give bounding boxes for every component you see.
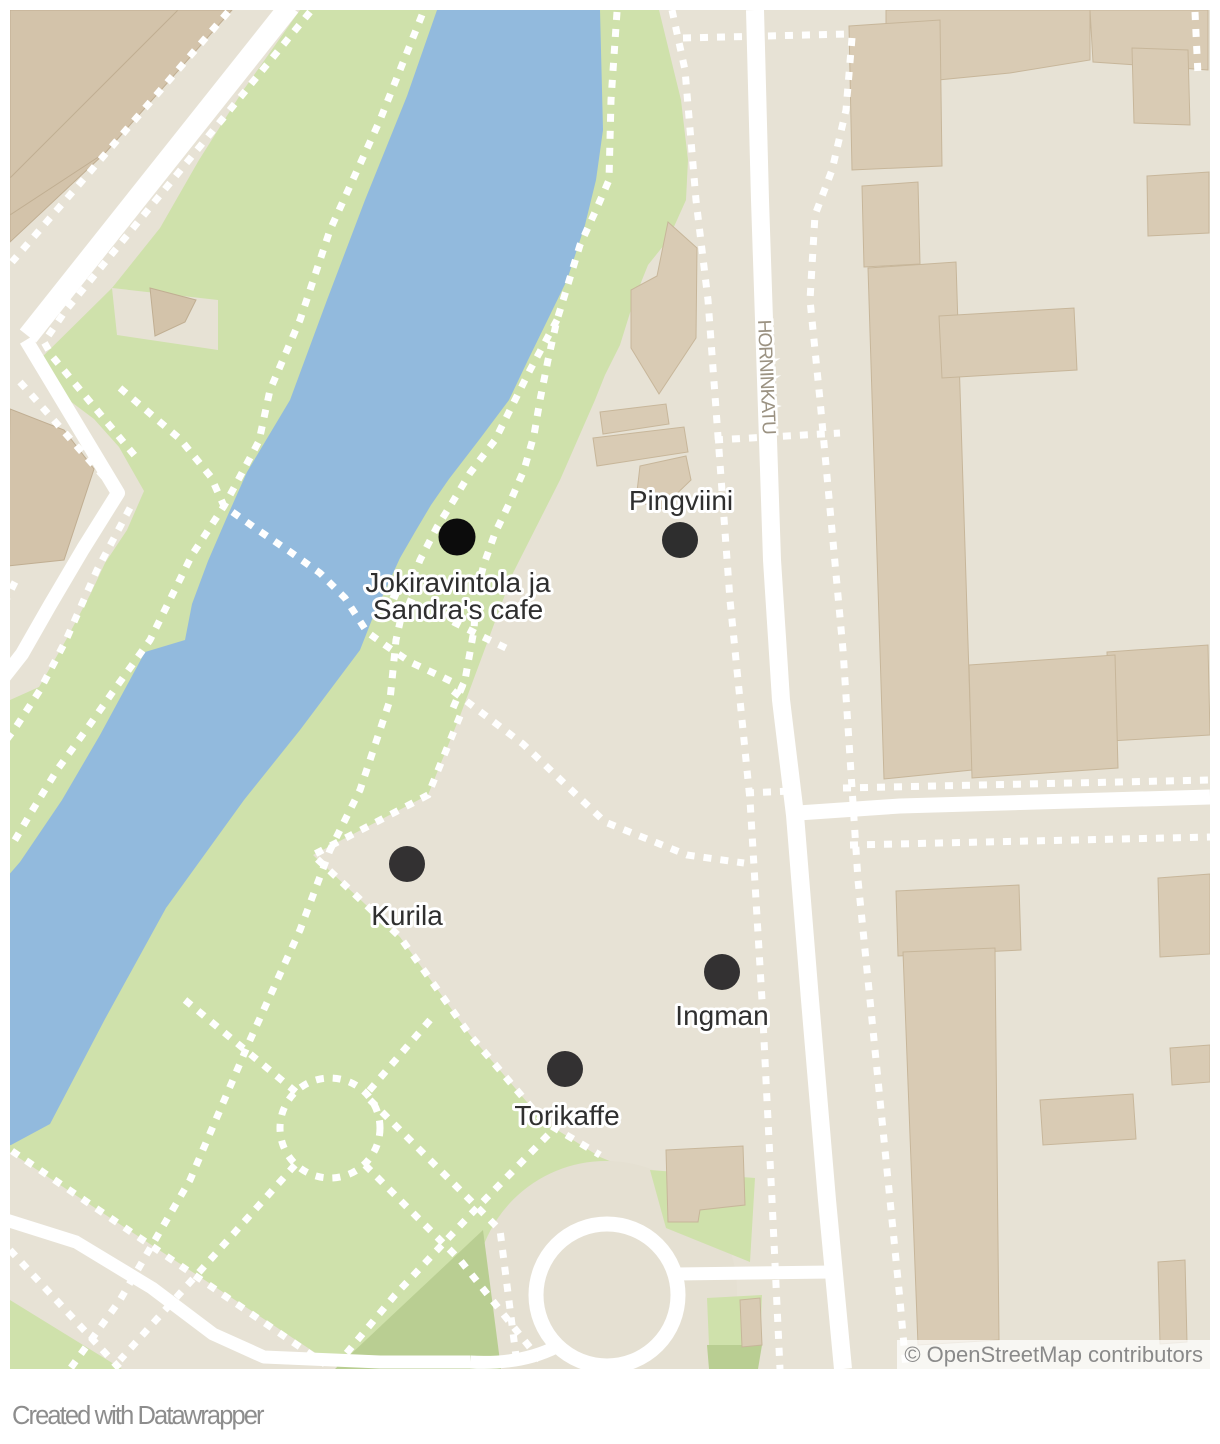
svg-text:Pingviini: Pingviini	[629, 485, 733, 516]
svg-text:© OpenStreetMap contributors: © OpenStreetMap contributors	[904, 1342, 1203, 1367]
svg-text:Ingman: Ingman	[675, 1000, 768, 1031]
svg-text:Torikaffe: Torikaffe	[514, 1100, 619, 1131]
svg-text:Kurila: Kurila	[371, 900, 443, 931]
svg-text:Sandra's cafe: Sandra's cafe	[373, 594, 543, 625]
